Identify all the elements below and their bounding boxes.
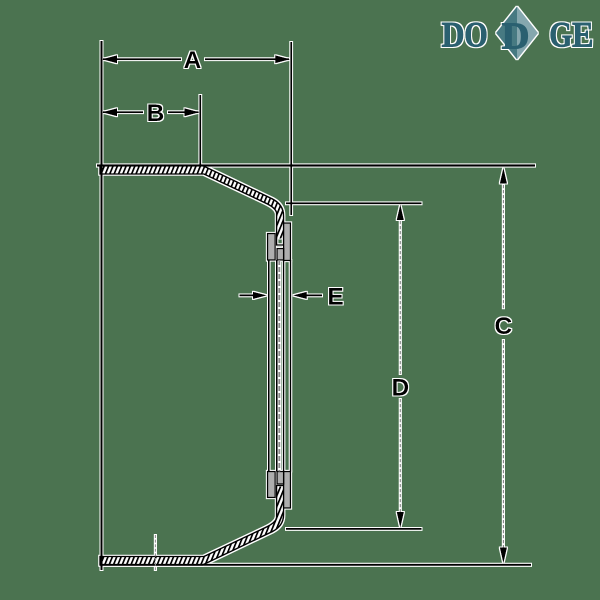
svg-text:E: E xyxy=(327,284,343,311)
svg-text:C: C xyxy=(495,313,513,340)
svg-text:E: E xyxy=(572,14,594,54)
svg-text:A: A xyxy=(184,47,202,74)
svg-text:G: G xyxy=(549,14,572,54)
svg-text:D: D xyxy=(391,375,409,402)
svg-text:B: B xyxy=(147,100,165,127)
svg-text:O: O xyxy=(464,14,488,54)
svg-text:D: D xyxy=(502,15,530,57)
svg-text:D: D xyxy=(442,14,465,54)
